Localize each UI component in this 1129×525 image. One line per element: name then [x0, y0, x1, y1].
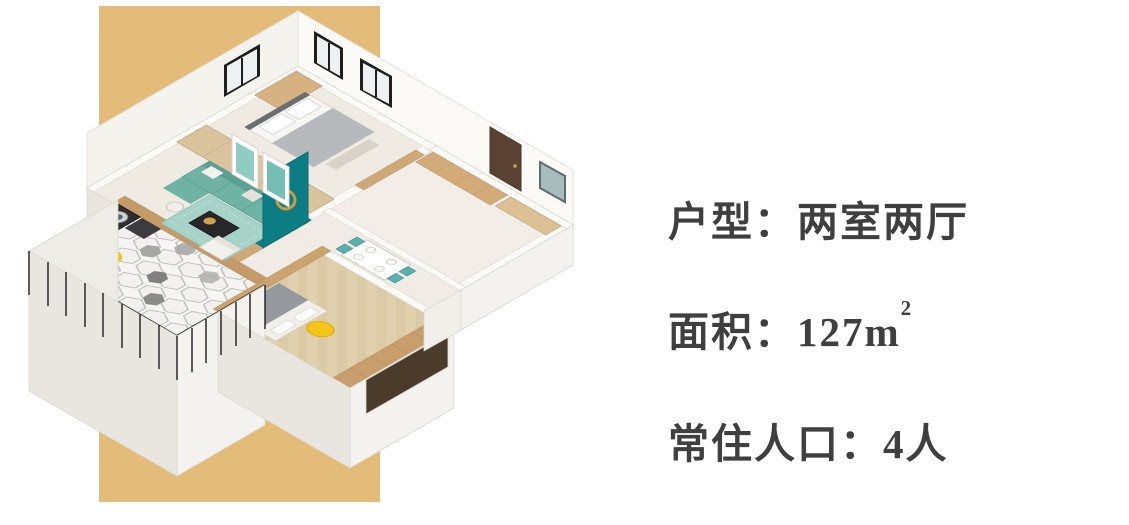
unit-residents-text: 常住人口：4人	[668, 421, 949, 467]
promo-graphic: 户型：两室两厅 面积：127m2 常住人口：4人	[0, 0, 1129, 525]
unit-layout-text: 户型：两室两厅	[668, 199, 969, 245]
unit-residents-line: 常住人口：4人	[668, 410, 949, 470]
floorplan-render	[0, 0, 640, 525]
area-superscript: 2	[901, 296, 912, 320]
unit-area-line: 面积：127m2	[668, 298, 911, 358]
unit-area-text: 面积：127m	[668, 309, 901, 355]
unit-layout-line: 户型：两室两厅	[668, 188, 969, 248]
